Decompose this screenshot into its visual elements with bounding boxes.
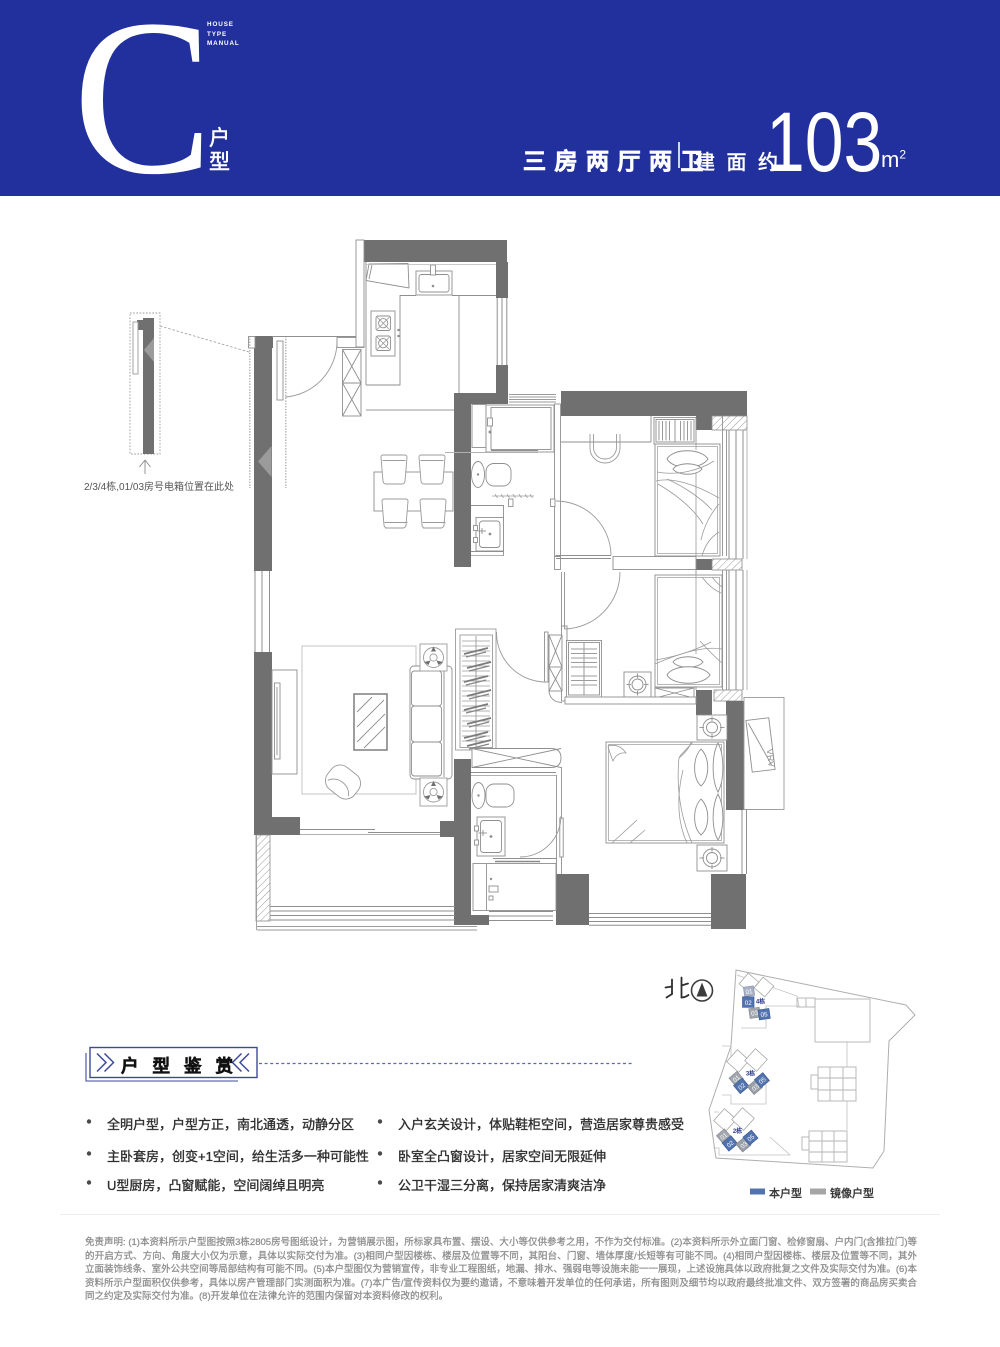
svg-text:2栋: 2栋	[733, 1127, 742, 1135]
svg-text:02: 02	[745, 1000, 753, 1007]
svg-text:4栋: 4栋	[756, 998, 765, 1006]
svg-text:3栋: 3栋	[746, 1070, 755, 1078]
